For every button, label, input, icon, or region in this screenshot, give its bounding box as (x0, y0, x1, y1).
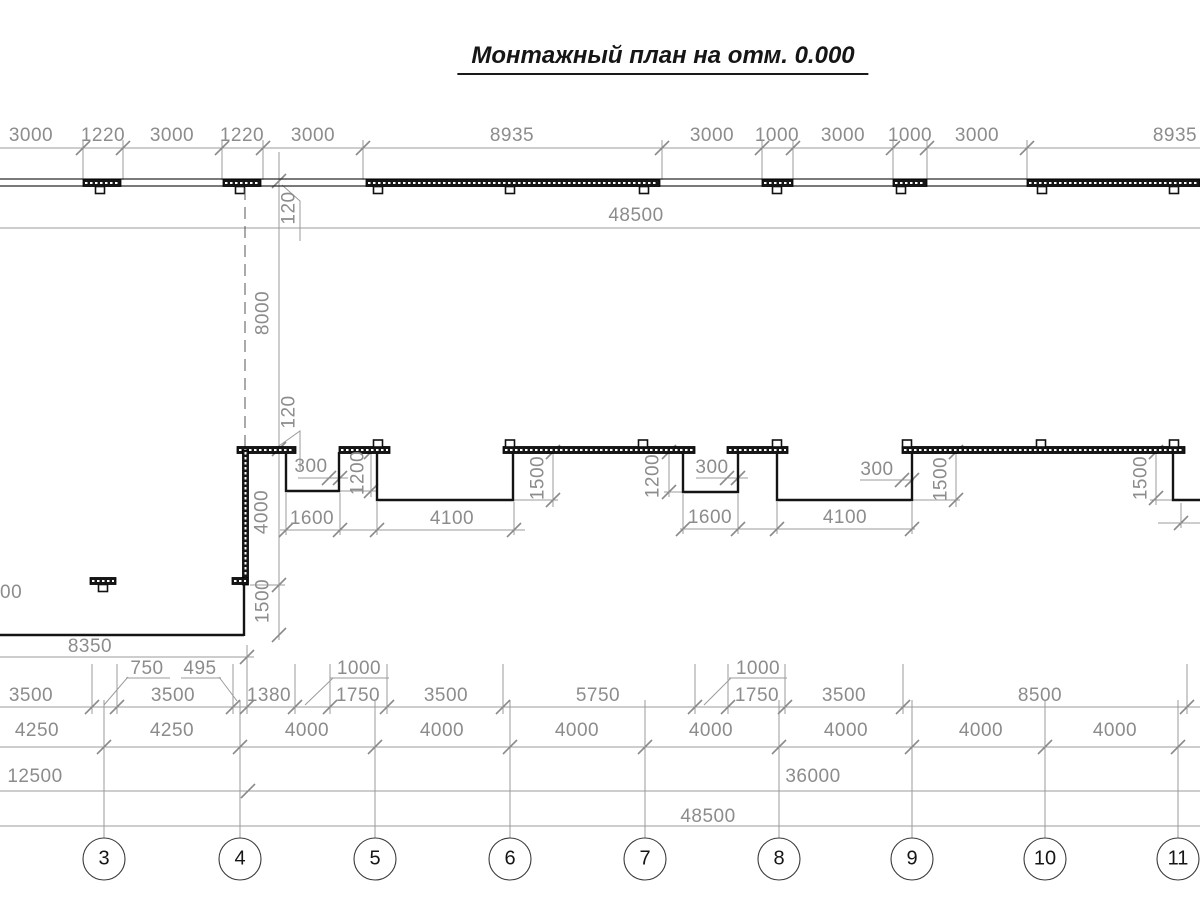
dim-mid-300-2: 300 (695, 458, 728, 477)
extension-lines-mid (250, 491, 1181, 585)
wall-panel-vertical (243, 450, 249, 585)
dim-row2-7: 4000 (959, 721, 1003, 740)
dim-36000: 36000 (785, 767, 840, 786)
dim-top-8: 3000 (821, 126, 865, 145)
dim-row1-4: 3500 (424, 686, 468, 705)
dim-top-2: 3000 (150, 126, 194, 145)
grid-bubble-4: 4 (234, 848, 245, 871)
dim-1000-left: 1000 (337, 659, 381, 678)
dim-row1-0: 3500 (9, 686, 53, 705)
dim-top-3: 1220 (220, 126, 264, 145)
grid-bubble-5: 5 (369, 848, 380, 871)
dim-row2-1: 4250 (150, 721, 194, 740)
grid-bubble-9: 9 (906, 848, 917, 871)
dim-row1-8: 8500 (1018, 686, 1062, 705)
top-wall (0, 179, 1200, 194)
dim-mid-1600-2: 1600 (688, 508, 732, 527)
dim-row2-8: 4000 (1093, 721, 1137, 740)
dim-top-5: 8935 (490, 126, 534, 145)
grid-bubble-3: 3 (98, 848, 109, 871)
dim-mid-300-3: 300 (860, 460, 893, 479)
dim-mid-300-1: 300 (294, 457, 327, 476)
dim-row2-3: 4000 (420, 721, 464, 740)
left-wall (0, 450, 249, 636)
dim-12500: 12500 (7, 767, 62, 786)
drawing-title: Монтажный план на отм. 0.000 (457, 42, 868, 75)
dim-top-9: 1000 (888, 126, 932, 145)
dim-row1-1: 3500 (151, 686, 195, 705)
wall-corner-foot (232, 578, 248, 585)
dim-mid-1500-3: 1500 (1133, 456, 1150, 500)
dim-bay-8000: 8000 (255, 291, 272, 335)
dim-row2-4: 4000 (555, 721, 599, 740)
dim-row1-7: 3500 (822, 686, 866, 705)
grid-bubble-6: 6 (504, 848, 515, 871)
dim-8350: 8350 (68, 637, 112, 656)
grid-lines (104, 700, 1178, 838)
dim-row2-5: 4000 (689, 721, 733, 740)
grid-bubble-8: 8 (773, 848, 784, 871)
small-panel (90, 578, 116, 585)
grid-bubble-11: 11 (1168, 848, 1189, 871)
recess-outlines (286, 452, 1200, 500)
dim-leftwall-4000: 4000 (254, 490, 271, 534)
dim-mid-1200-2: 1200 (645, 454, 662, 498)
dim-row1-5: 5750 (576, 686, 620, 705)
wall-panel (762, 180, 793, 187)
dim-row2-6: 4000 (824, 721, 868, 740)
dim-row2-2: 4000 (285, 721, 329, 740)
dim-left-cut: 00 (0, 583, 22, 602)
dim-495: 495 (183, 659, 216, 678)
dim-top-6: 3000 (690, 126, 734, 145)
dim-top-10: 3000 (955, 126, 999, 145)
dim-offset-120-mid: 120 (281, 395, 298, 428)
drawing-sheet: Монтажный план на отм. 0.000 3000 1220 3… (0, 0, 1200, 900)
grid-bubble-7: 7 (639, 848, 650, 871)
dim-mid-1500-2: 1500 (933, 457, 950, 501)
dim-top-7: 1000 (755, 126, 799, 145)
dim-overall-bottom: 48500 (680, 807, 735, 826)
wall-panel (893, 180, 927, 187)
wall-panel (1027, 180, 1200, 187)
wall-panel (223, 180, 261, 187)
dim-top-1: 1220 (81, 126, 125, 145)
dim-mid-1200-1: 1200 (350, 451, 367, 495)
dim-row1-2: 1380 (247, 686, 291, 705)
dim-mid-4100-2: 4100 (823, 508, 867, 527)
wall-panel (366, 180, 660, 187)
dim-mid-1600-1: 1600 (290, 509, 334, 528)
dim-row1-3: 1750 (336, 686, 380, 705)
dim-mid-1500-1: 1500 (530, 456, 547, 500)
wall-panel (503, 447, 695, 454)
wall-panel (83, 180, 121, 187)
leader-lines (104, 185, 787, 705)
dim-overall-top: 48500 (608, 206, 663, 225)
dim-750: 750 (130, 659, 163, 678)
dim-leftwall-1500: 1500 (255, 579, 272, 623)
dim-top-0: 3000 (9, 126, 53, 145)
dim-top-11: 8935 (1153, 126, 1197, 145)
dim-offset-120-upper: 120 (281, 191, 298, 224)
grid-bubble-10: 10 (1034, 848, 1056, 871)
dim-top-4: 3000 (291, 126, 335, 145)
dim-row2-0: 4250 (15, 721, 59, 740)
dim-row1-6: 1750 (735, 686, 779, 705)
dim-1000-right: 1000 (736, 659, 780, 678)
building-outline (0, 584, 244, 636)
dim-mid-4100-1: 4100 (430, 509, 474, 528)
